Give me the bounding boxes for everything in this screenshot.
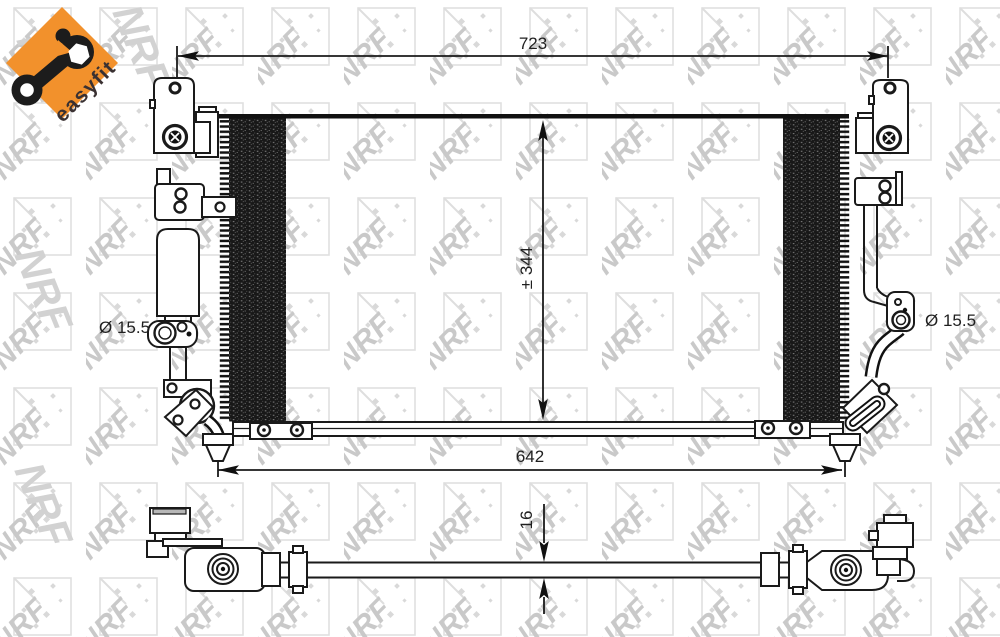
condenser-technical-drawing: NRF NRF NRF NRF NRF: [0, 0, 1000, 637]
dim-core-height-label: ± 344: [517, 247, 536, 289]
tank-bracket-right: [755, 421, 810, 438]
technical-drawing-page: NRF NRF NRF NRF NRF: [0, 0, 1000, 637]
dim-width-top-label: 723: [519, 34, 547, 53]
screw-head: [164, 126, 187, 149]
core-fins-left-edge: [219, 119, 229, 422]
dim-port-left-label: Ø 15.5: [99, 318, 150, 337]
bracket-hole: [170, 83, 180, 93]
dim-depth-label: 16: [517, 511, 536, 530]
core-texture-right: [783, 119, 840, 422]
bracket-hole: [885, 83, 895, 93]
port-fitting-left: [148, 321, 197, 347]
core-texture-left: [229, 119, 286, 422]
tank-bracket-left: [250, 423, 312, 439]
dim-width-bottom-label: 642: [516, 447, 544, 466]
dim-port-right-label: Ø 15.5: [925, 311, 976, 330]
core-top-header: [218, 114, 849, 119]
core-fins-right-edge: [840, 119, 850, 422]
screw-head: [878, 127, 901, 150]
bottom-tank: [233, 421, 843, 439]
